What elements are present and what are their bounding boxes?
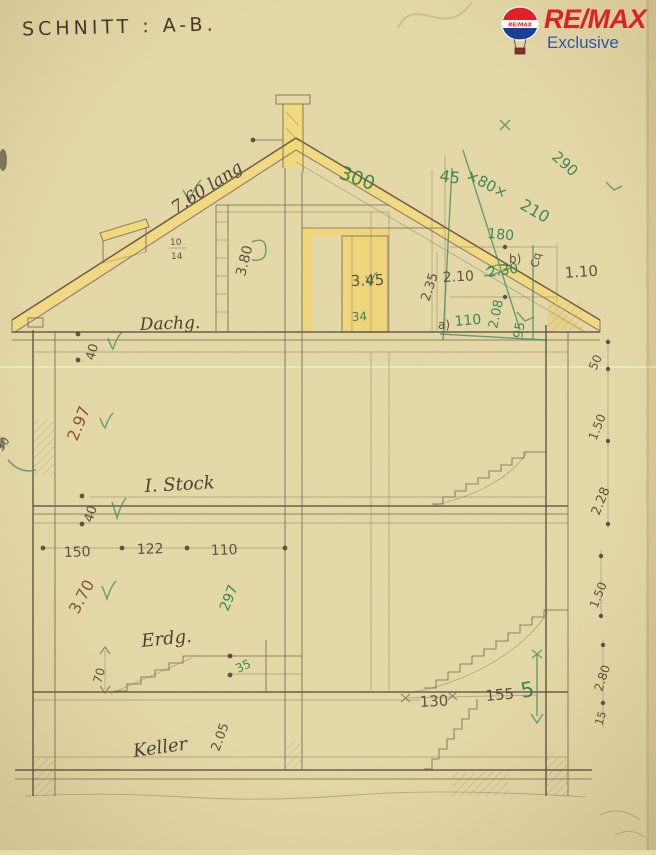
balloon-wordmark: RE/MAX — [508, 22, 532, 28]
remax-logo: RE/MAX RE/MAX Exclusive — [500, 6, 646, 60]
dormer-fraction-den: 14 — [171, 252, 183, 262]
mark-a: a) — [438, 318, 450, 332]
dim-155: 155 — [485, 685, 515, 705]
paper-background — [0, 0, 656, 850]
dim-180: 180 — [487, 226, 515, 244]
floor-label-first: I. Stock — [143, 472, 215, 497]
dim-95: 95 — [511, 321, 529, 340]
section-drawing-svg: 7.60 lang 300 45 ×80× 210 290 180 1.10 2… — [0, 0, 656, 850]
dim-45: 45 — [438, 166, 461, 188]
mark-b: b) — [509, 252, 521, 266]
dormer-fraction-num: 10 — [170, 238, 182, 248]
remax-balloon-icon: RE/MAX — [500, 6, 540, 60]
dim-2-10: 2.10 — [442, 268, 474, 286]
dim-150-width: 150 — [64, 544, 91, 561]
scanned-drawing-page: 7.60 lang 300 45 ×80× 210 290 180 1.10 2… — [0, 0, 656, 850]
dim-122-width: 122 — [137, 541, 164, 558]
balloon-basket — [515, 48, 525, 54]
dim-130: 130 — [419, 692, 449, 711]
dim-3-45: 3.45 — [351, 271, 385, 290]
dim-1-10: 1.10 — [564, 262, 599, 282]
floor-label-attic: Dachg. — [138, 313, 200, 335]
dim-110-green: 110 — [454, 312, 482, 330]
remax-brand-text: RE/MAX — [544, 6, 646, 33]
dim-110-width: 110 — [211, 542, 238, 559]
remax-subtitle-text: Exclusive — [544, 34, 646, 51]
dim-34: 34 — [351, 309, 367, 324]
